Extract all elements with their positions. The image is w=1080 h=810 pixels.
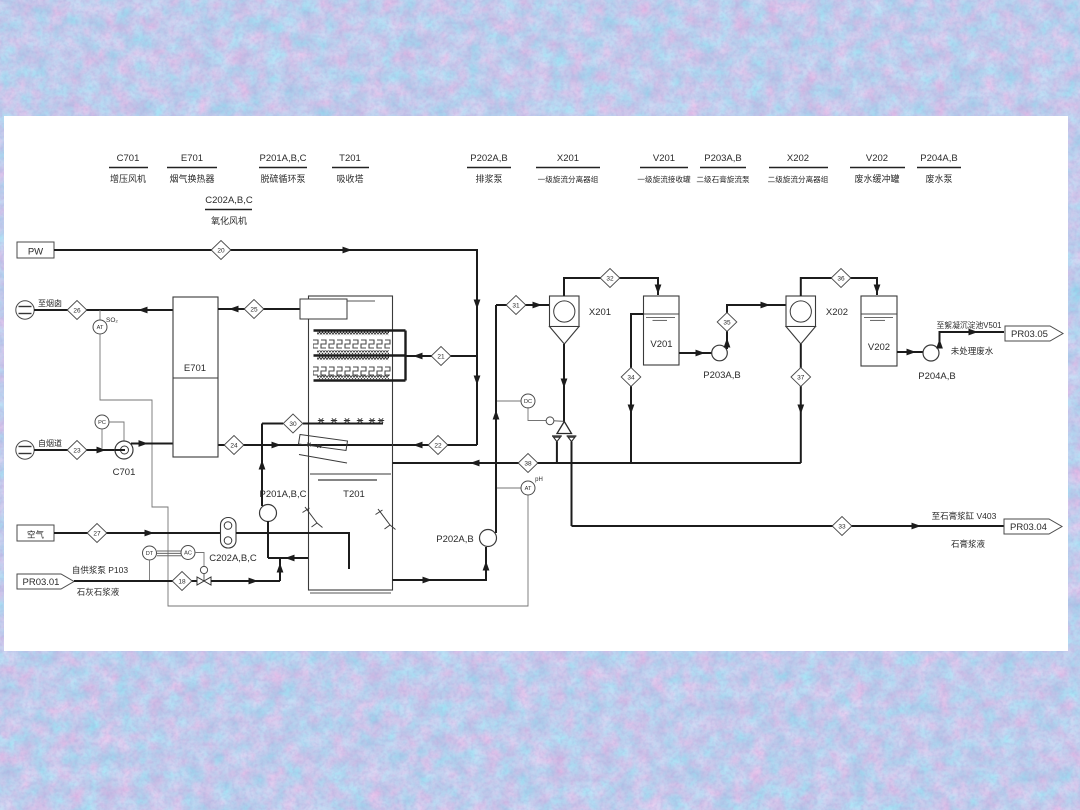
svg-text:烟气换热器: 烟气换热器 <box>169 173 214 184</box>
svg-text:25: 25 <box>250 306 258 313</box>
svg-text:自供浆泵 P103: 自供浆泵 P103 <box>72 565 128 575</box>
svg-text:36: 36 <box>837 275 845 282</box>
svg-text:石灰石浆液: 石灰石浆液 <box>77 587 120 597</box>
svg-text:35: 35 <box>723 319 731 326</box>
svg-text:27: 27 <box>93 530 101 537</box>
svg-text:一级旋流分离器组: 一级旋流分离器组 <box>538 174 599 184</box>
svg-text:V202: V202 <box>866 153 888 164</box>
svg-text:PW: PW <box>28 247 43 258</box>
svg-text:X201: X201 <box>557 153 579 164</box>
svg-text:18: 18 <box>178 578 186 585</box>
svg-text:空气: 空气 <box>27 530 45 540</box>
svg-text:未处理废水: 未处理废水 <box>951 346 994 356</box>
svg-text:C202A,B,C: C202A,B,C <box>205 195 253 206</box>
svg-text:X202: X202 <box>826 307 848 318</box>
svg-text:PC: PC <box>98 420 106 426</box>
svg-text:一级旋流接收罐: 一级旋流接收罐 <box>637 174 691 184</box>
svg-text:32: 32 <box>606 275 614 282</box>
svg-text:V202: V202 <box>868 342 890 353</box>
svg-text:T201: T201 <box>339 153 361 164</box>
svg-text:34: 34 <box>627 374 635 381</box>
svg-text:DC: DC <box>524 399 532 405</box>
svg-text:V201: V201 <box>650 339 672 350</box>
svg-text:X202: X202 <box>787 153 809 164</box>
svg-text:至絮凝沉淀池V501: 至絮凝沉淀池V501 <box>937 320 1002 330</box>
svg-text:E701: E701 <box>184 363 206 374</box>
svg-text:P203A,B: P203A,B <box>703 370 741 381</box>
svg-text:二级石膏旋流泵: 二级石膏旋流泵 <box>696 174 750 184</box>
svg-text:pH: pH <box>535 477 543 483</box>
svg-text:P202A,B: P202A,B <box>436 534 474 545</box>
svg-text:T201: T201 <box>343 489 365 500</box>
svg-text:31: 31 <box>512 302 520 309</box>
svg-text:20: 20 <box>217 247 225 254</box>
svg-text:C701: C701 <box>117 153 140 164</box>
svg-text:AC: AC <box>184 551 192 557</box>
svg-text:P201A,B,C: P201A,B,C <box>260 153 307 164</box>
svg-text:22: 22 <box>434 442 442 449</box>
svg-text:P202A,B: P202A,B <box>470 153 508 164</box>
svg-text:PR03.04: PR03.04 <box>1010 522 1047 533</box>
svg-text:21: 21 <box>437 353 445 360</box>
svg-text:C202A,B,C: C202A,B,C <box>209 553 257 564</box>
svg-text:C701: C701 <box>113 467 136 478</box>
svg-text:PR03.05: PR03.05 <box>1011 329 1048 340</box>
svg-text:自烟道: 自烟道 <box>38 438 62 448</box>
svg-text:脱硫循环泵: 脱硫循环泵 <box>260 173 305 184</box>
svg-text:P204A,B: P204A,B <box>920 153 958 164</box>
svg-text:23: 23 <box>73 447 81 454</box>
svg-text:石膏浆液: 石膏浆液 <box>951 539 986 549</box>
svg-text:废水缓冲罐: 废水缓冲罐 <box>854 173 899 184</box>
svg-text:废水泵: 废水泵 <box>925 173 952 184</box>
svg-text:33: 33 <box>838 523 846 530</box>
svg-text:P204A,B: P204A,B <box>918 371 956 382</box>
svg-text:P203A,B: P203A,B <box>704 153 742 164</box>
svg-text:至烟囱: 至烟囱 <box>38 298 62 308</box>
svg-text:AT: AT <box>97 325 104 331</box>
svg-text:26: 26 <box>73 307 81 314</box>
svg-text:二级旋流分离器组: 二级旋流分离器组 <box>768 174 829 184</box>
svg-text:至石膏浆缸 V403: 至石膏浆缸 V403 <box>932 511 997 521</box>
svg-text:PR03.01: PR03.01 <box>23 577 60 588</box>
svg-text:增压风机: 增压风机 <box>110 173 146 184</box>
svg-text:DT: DT <box>146 551 154 557</box>
svg-text:E701: E701 <box>181 153 203 164</box>
svg-text:X201: X201 <box>589 307 611 318</box>
svg-text:吸收塔: 吸收塔 <box>336 173 363 184</box>
svg-text:排浆泵: 排浆泵 <box>475 173 502 184</box>
svg-text:SO₂: SO₂ <box>106 317 118 324</box>
svg-text:24: 24 <box>230 442 238 449</box>
svg-text:38: 38 <box>524 460 532 467</box>
svg-text:氧化风机: 氧化风机 <box>211 215 247 226</box>
svg-text:V201: V201 <box>653 153 675 164</box>
svg-text:37: 37 <box>797 374 805 381</box>
svg-text:P201A,B,C: P201A,B,C <box>260 489 307 500</box>
svg-text:30: 30 <box>289 421 297 428</box>
svg-text:AT: AT <box>525 486 532 492</box>
